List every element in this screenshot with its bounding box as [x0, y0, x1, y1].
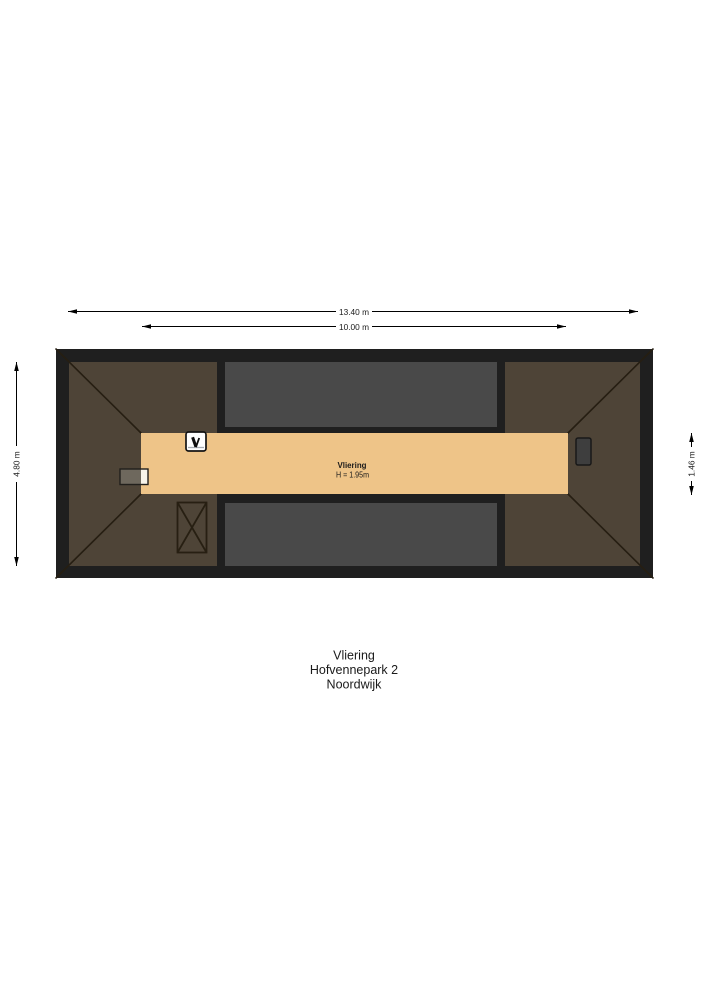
svg-text:Vliering: Vliering [333, 649, 375, 663]
svg-text:Noordwijk: Noordwijk [327, 678, 383, 692]
svg-text:H = 1.95m: H = 1.95m [336, 471, 369, 480]
svg-text:1.46 m: 1.46 m [687, 451, 697, 476]
svg-text:4.80 m: 4.80 m [12, 451, 22, 476]
svg-text:13.40 m: 13.40 m [339, 307, 369, 317]
svg-text:10.00 m: 10.00 m [339, 322, 369, 332]
svg-text:Hofvennepark 2: Hofvennepark 2 [310, 663, 398, 677]
svg-text:Vliering: Vliering [338, 460, 367, 470]
